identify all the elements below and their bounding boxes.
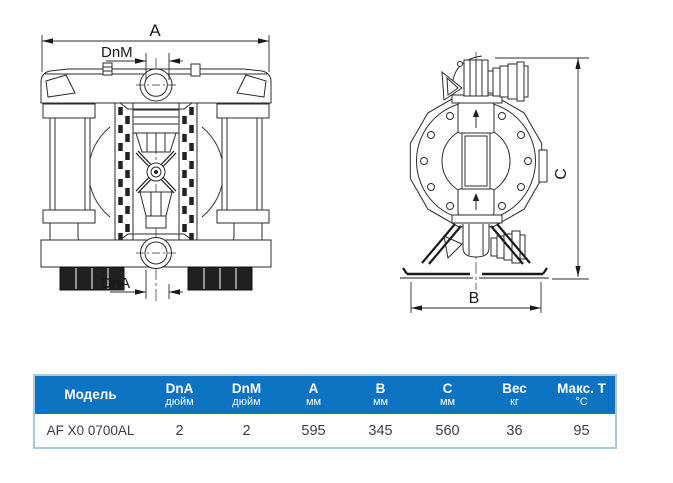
spec-table-row: AF X0 0700AL 2 2 595 345 560 36 95 — [35, 414, 615, 447]
cell-model: AF X0 0700AL — [35, 423, 146, 438]
spec-table-header: Модель DnA дюйм DnM дюйм A мм B мм C мм … — [35, 376, 615, 414]
col-header-dna: DnA дюйм — [146, 376, 213, 414]
col-header-model-label: Модель — [64, 387, 116, 402]
cell-dnm: 2 — [213, 423, 280, 439]
top-manifold — [41, 63, 271, 109]
dim-b-label: B — [469, 290, 480, 307]
cell-max-t: 95 — [548, 423, 615, 439]
outlet-horn — [488, 62, 528, 101]
col-header-model: Модель — [35, 376, 146, 414]
bottom-manifold — [41, 234, 271, 269]
air-valve-section — [133, 103, 179, 228]
spec-table: Модель DnA дюйм DnM дюйм A мм B мм C мм … — [33, 374, 617, 449]
dim-c-label: C — [553, 168, 570, 180]
cell-a: 595 — [280, 423, 347, 439]
top-outlet-assembly — [442, 56, 528, 101]
cell-dna: 2 — [146, 423, 213, 439]
dim-a: A — [42, 21, 269, 72]
dim-dna: DnA — [101, 270, 183, 299]
col-header-max-t: Макс. T °C — [548, 376, 615, 414]
col-header-dnm: DnM дюйм — [213, 376, 280, 414]
dim-dna-label: DnA — [101, 275, 130, 292]
col-header-weight: Вес кг — [481, 376, 548, 414]
front-view: A DnM DnA — [41, 21, 271, 302]
col-header-b: B мм — [347, 376, 414, 414]
side-view: C B — [400, 52, 589, 313]
cell-weight: 36 — [481, 423, 548, 439]
right-fluid-column — [216, 104, 269, 263]
cell-b: 345 — [347, 423, 414, 439]
col-header-a: A мм — [280, 376, 347, 414]
pump-technical-drawing: A DnM DnA — [0, 0, 673, 360]
dim-dnm-label: DnM — [101, 44, 133, 61]
air-inlet-bolt — [103, 63, 112, 75]
dim-a-label: A — [149, 21, 161, 40]
bottom-inlet-assembly — [400, 224, 549, 278]
col-header-c: C мм — [414, 376, 481, 414]
cell-c: 560 — [414, 423, 481, 439]
left-fluid-column — [43, 104, 96, 263]
